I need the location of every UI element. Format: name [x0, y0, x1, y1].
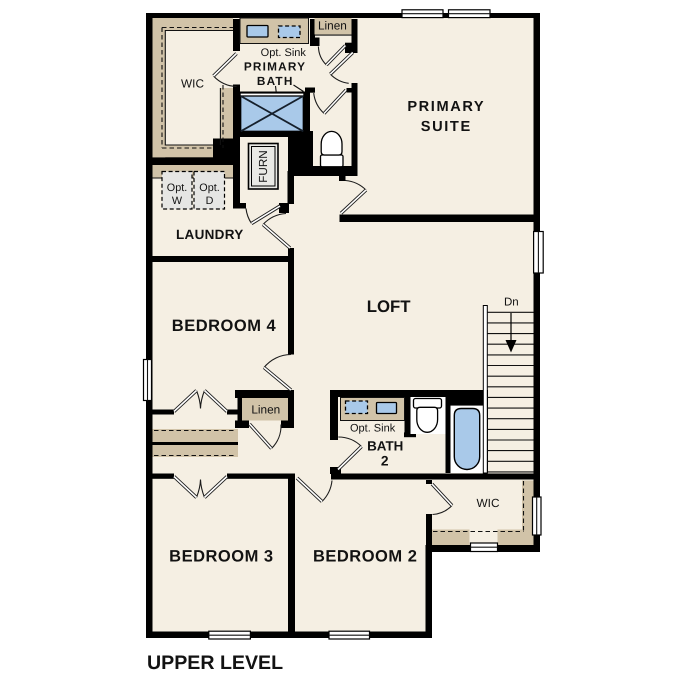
svg-text:BATH: BATH	[257, 74, 294, 88]
svg-text:BEDROOM 3: BEDROOM 3	[169, 548, 273, 566]
svg-text:WIC: WIC	[181, 77, 204, 91]
svg-text:WIC: WIC	[477, 496, 500, 510]
svg-text:Linen: Linen	[251, 403, 280, 417]
svg-text:D: D	[206, 195, 214, 207]
svg-text:LOFT: LOFT	[367, 297, 412, 316]
svg-text:2: 2	[381, 454, 389, 469]
svg-text:W: W	[172, 195, 183, 207]
svg-text:PRIMARY: PRIMARY	[407, 99, 485, 115]
svg-text:UPPER LEVEL: UPPER LEVEL	[147, 652, 283, 674]
svg-text:PRIMARY: PRIMARY	[244, 59, 306, 73]
svg-text:FURN: FURN	[257, 150, 270, 182]
svg-text:Opt. Sink: Opt. Sink	[350, 423, 396, 435]
svg-text:LAUNDRY: LAUNDRY	[176, 227, 244, 242]
svg-text:BEDROOM 2: BEDROOM 2	[313, 548, 417, 566]
svg-text:Opt.: Opt.	[199, 182, 219, 194]
svg-text:Linen: Linen	[318, 19, 347, 33]
svg-text:SUITE: SUITE	[421, 119, 472, 135]
svg-text:Opt.: Opt.	[167, 182, 187, 194]
svg-text:Dn: Dn	[504, 297, 519, 309]
svg-text:Opt. Sink: Opt. Sink	[261, 47, 307, 59]
svg-text:BATH: BATH	[367, 438, 403, 453]
svg-text:BEDROOM 4: BEDROOM 4	[172, 317, 277, 335]
